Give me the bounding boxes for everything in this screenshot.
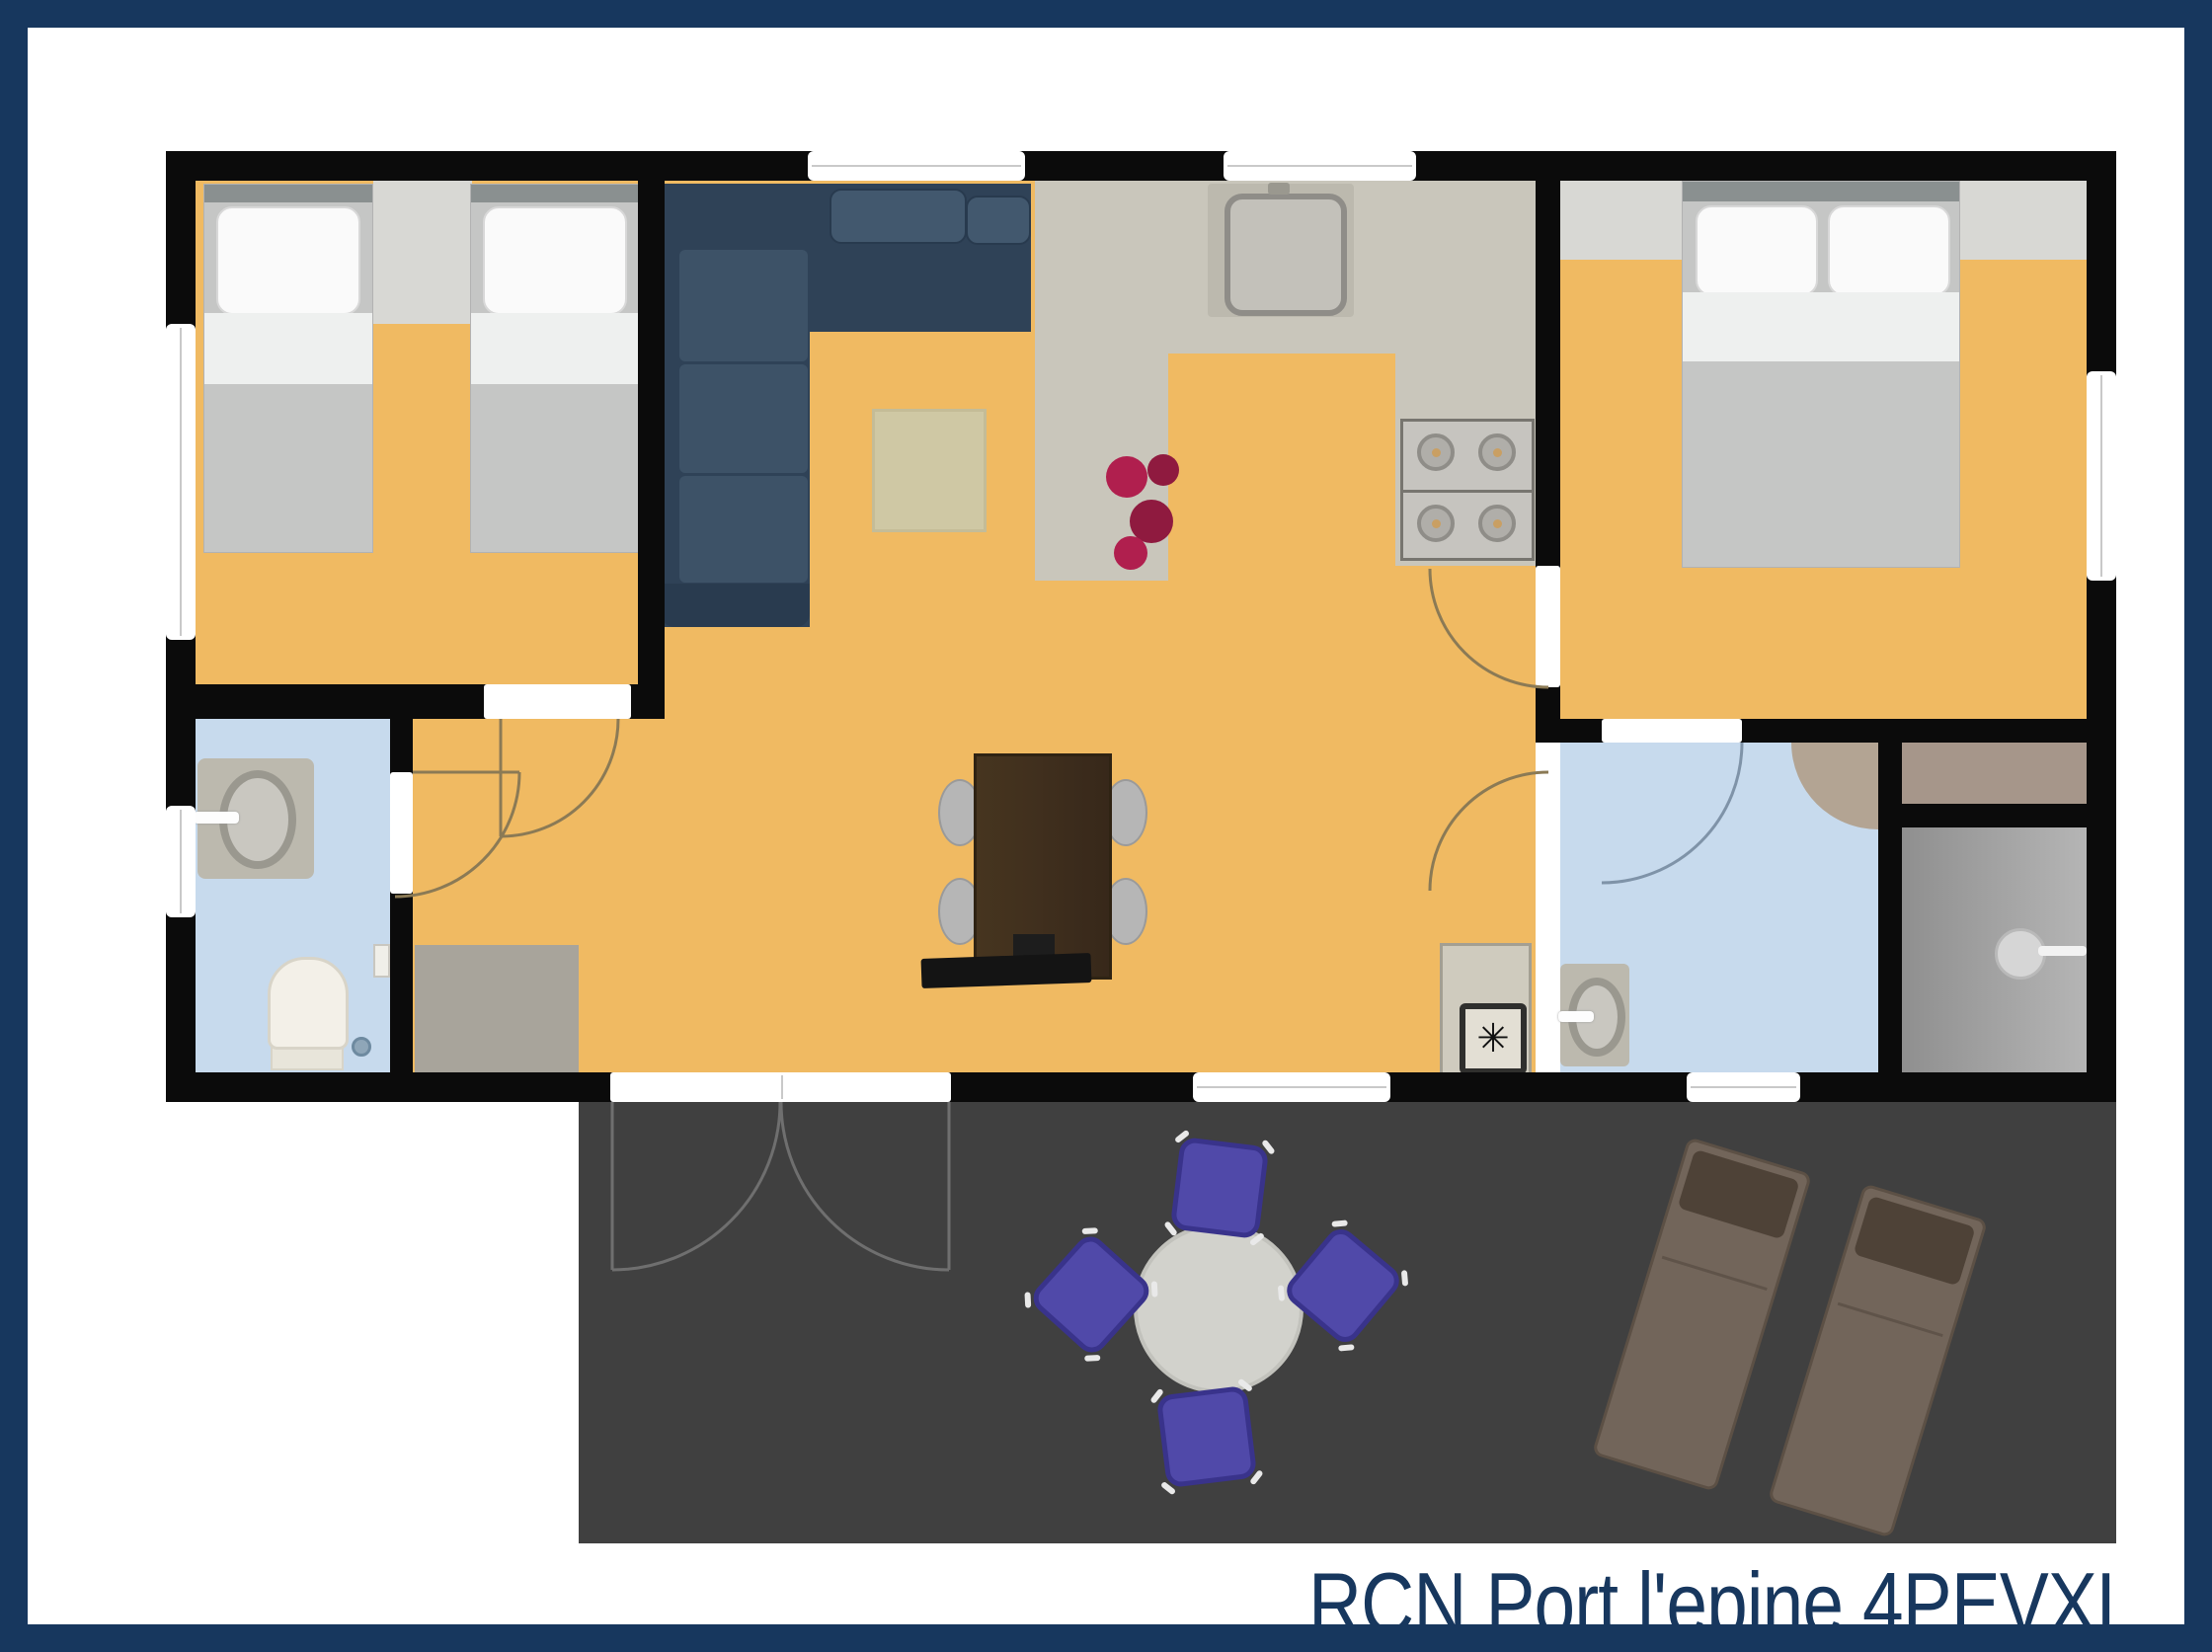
tv-sideboard: [921, 953, 1092, 988]
flower-decoration: [1114, 536, 1147, 570]
window-bathroom-bottom: [1687, 1072, 1800, 1102]
bed-headboard: [204, 185, 372, 202]
bed-sheet: [1683, 292, 1959, 361]
flower-decoration: [1147, 454, 1179, 486]
bed-pillow: [216, 206, 360, 315]
window-master-right: [2087, 371, 2116, 581]
burner-icon: [1417, 433, 1455, 471]
wall-bottom: [166, 1072, 2116, 1102]
chair-leg: [1024, 1292, 1031, 1307]
chair-leg: [1278, 1285, 1285, 1300]
washing-machine: ✳: [1440, 943, 1532, 1078]
living-room-rug: [872, 409, 987, 532]
single-bed-left: [203, 184, 373, 553]
closet-floor: [1902, 743, 2087, 804]
door-kids-bedroom: [484, 684, 631, 719]
hallway-doormat: [415, 945, 579, 1072]
kids-nightstand: [373, 181, 472, 324]
stove-divider: [1403, 490, 1532, 493]
wall-right: [2087, 151, 2116, 1102]
bed-headboard: [1683, 182, 1959, 201]
bed-sheet: [471, 313, 639, 384]
tap-icon: [1558, 1011, 1594, 1022]
bed-headboard: [471, 185, 639, 202]
front-double-door: [610, 1072, 951, 1102]
floor-drain: [352, 1037, 371, 1057]
lounger-seam: [1662, 1256, 1768, 1291]
chair-leg: [1401, 1270, 1408, 1286]
sofa-armrest: [661, 584, 810, 627]
sofa-seat-cushion: [679, 364, 808, 473]
burner-icon: [1478, 505, 1516, 542]
bed-pillow: [483, 206, 627, 315]
terrace-chair-top: [1170, 1137, 1270, 1239]
bed-sheet: [204, 313, 372, 384]
bedside-shelf-right: [1958, 181, 2087, 260]
double-bed: [1682, 181, 1960, 568]
door-bathroom-hall: [1536, 771, 1560, 891]
toilet: [268, 957, 349, 1050]
terrace-round-table: [1134, 1223, 1303, 1393]
burner-icon: [1478, 433, 1516, 471]
floorplan-image: ✳: [0, 0, 2212, 1652]
chair-leg: [1084, 1355, 1100, 1362]
sofa-back-pillow: [829, 189, 967, 244]
wall-switch: [373, 944, 390, 978]
burner-icon: [1417, 505, 1455, 542]
window-kids-bedroom-left: [166, 324, 196, 640]
kitchen-sink: [1224, 194, 1347, 316]
washing-machine-symbol: ✳: [1460, 1003, 1527, 1074]
door-toilet: [390, 772, 413, 894]
shower-arm: [2038, 946, 2087, 956]
door-bathroom-bedroom: [1602, 719, 1742, 743]
wall-closet-bottom: [1878, 804, 2116, 827]
single-bed-right: [470, 184, 640, 553]
window-toilet-left: [166, 806, 196, 917]
window-kitchen-top: [1224, 151, 1416, 181]
tap-icon: [194, 812, 239, 824]
bed-pillow: [1828, 205, 1950, 296]
bedside-shelf-left: [1560, 181, 1682, 260]
wall-shower-left: [1878, 719, 1902, 1102]
chair-leg: [1082, 1227, 1098, 1234]
stove: [1400, 419, 1535, 561]
window-living-bottom: [1193, 1072, 1390, 1102]
chair-leg: [1151, 1281, 1158, 1297]
lounger-seam: [1838, 1302, 1943, 1337]
front-door-split: [781, 1075, 783, 1099]
bed-pillow: [1696, 205, 1818, 296]
flower-decoration: [1106, 456, 1147, 498]
wall-kids-bedroom-right: [638, 151, 665, 719]
wall-top: [166, 151, 2116, 181]
sofa-seat-cushion: [679, 250, 808, 361]
door-master-bedroom: [1536, 566, 1560, 687]
sofa-seat-cushion: [679, 476, 808, 583]
kitchen-tap-icon: [1268, 183, 1290, 195]
window-living-top: [808, 151, 1025, 181]
plan-title: RCN Port l'epine 4PEVXL: [1308, 1560, 2137, 1647]
terrace-chair-bottom: [1156, 1385, 1258, 1489]
sofa-back-pillow: [966, 196, 1031, 245]
